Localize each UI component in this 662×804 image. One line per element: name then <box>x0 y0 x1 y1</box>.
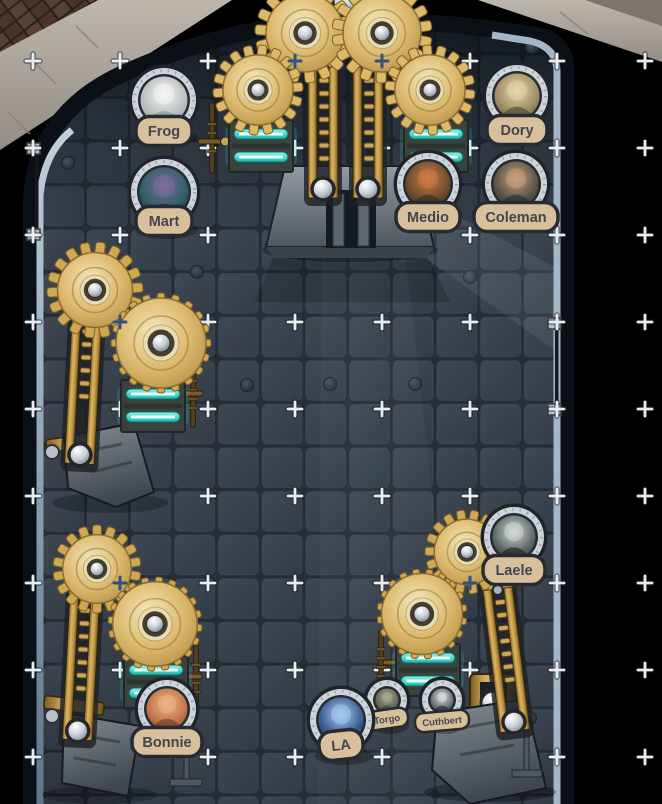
vtt-scene[interactable]: FrogMartDoryMedioColemanLaeleBonnieTorgo… <box>0 0 662 804</box>
spring-coil <box>80 381 90 387</box>
portrait-head <box>504 522 523 541</box>
token-laele[interactable]: Laele <box>481 504 548 585</box>
spring-coil <box>81 355 91 361</box>
spring-coil <box>79 621 89 627</box>
token-nameplate: Mart <box>136 207 192 236</box>
pulley-wheel <box>357 178 379 200</box>
spring-coil <box>79 634 89 640</box>
token-label: Laele <box>495 563 532 579</box>
token-frog[interactable]: Frog <box>129 65 200 147</box>
token-dory[interactable]: Dory <box>483 62 552 145</box>
pulley-wheel <box>66 719 89 742</box>
spring-coil <box>77 673 87 679</box>
token-nameplate: Laele <box>483 556 545 585</box>
token-mart[interactable]: Mart <box>128 156 201 240</box>
spring-coil <box>319 156 329 161</box>
token-nameplate: LA <box>318 728 365 761</box>
token-nameplate: Frog <box>136 117 192 146</box>
token-label: Bonnie <box>142 735 191 751</box>
spring-coil <box>364 130 374 135</box>
token-medio[interactable]: Medio <box>394 150 463 232</box>
spring-coil <box>319 117 329 122</box>
portrait-head <box>507 80 527 100</box>
token-label: Mart <box>149 214 180 230</box>
portrait-head <box>153 84 174 105</box>
pulley-wheel <box>68 443 91 466</box>
portrait-head <box>158 695 176 713</box>
spring-coil <box>501 651 512 657</box>
token-nameplate: Bonnie <box>132 728 202 757</box>
token-label: Medio <box>407 210 449 226</box>
portrait-head <box>437 692 447 702</box>
spring-coil <box>504 677 515 683</box>
token-label: Frog <box>148 124 180 140</box>
token-nameplate: Cuthbert <box>414 709 469 733</box>
spring-coil <box>503 664 514 670</box>
spring-coil <box>79 394 89 400</box>
spring-coil <box>500 638 511 644</box>
spring-coil <box>319 91 329 96</box>
token-label: Coleman <box>485 210 546 226</box>
token-nameplate: Coleman <box>474 203 558 232</box>
token-nameplate: Medio <box>396 203 460 232</box>
spring-coil <box>319 143 329 148</box>
spring-coil <box>77 660 87 666</box>
spring-coil <box>82 342 92 348</box>
spring-coil <box>498 625 509 631</box>
pulley-wheel <box>502 710 527 735</box>
portrait-head <box>331 704 351 724</box>
spring-coil <box>319 104 329 109</box>
portrait-head <box>153 175 175 197</box>
spring-coil <box>495 599 506 605</box>
spring-coil <box>76 686 86 692</box>
spring-coil <box>364 91 374 96</box>
portrait-head <box>382 692 392 702</box>
token-label: Dory <box>500 123 533 139</box>
token-nameplate: Dory <box>487 116 547 145</box>
vtt-canvas: FrogMartDoryMedioColemanLaeleBonnieTorgo… <box>0 0 662 804</box>
spring-coil <box>364 156 374 161</box>
token-la[interactable]: LA <box>307 686 376 766</box>
token-bonnie[interactable]: Bonnie <box>132 677 202 757</box>
spring-coil <box>497 612 508 618</box>
spring-coil <box>80 368 90 374</box>
portrait-head <box>506 168 526 188</box>
portrait-head <box>418 168 438 188</box>
spring-coil <box>364 117 374 122</box>
spring-coil <box>364 104 374 109</box>
spring-coil <box>319 130 329 135</box>
spring-coil <box>78 647 88 653</box>
token-label: LA <box>331 737 352 755</box>
spring-coil <box>364 143 374 148</box>
pulley-wheel <box>312 178 334 200</box>
